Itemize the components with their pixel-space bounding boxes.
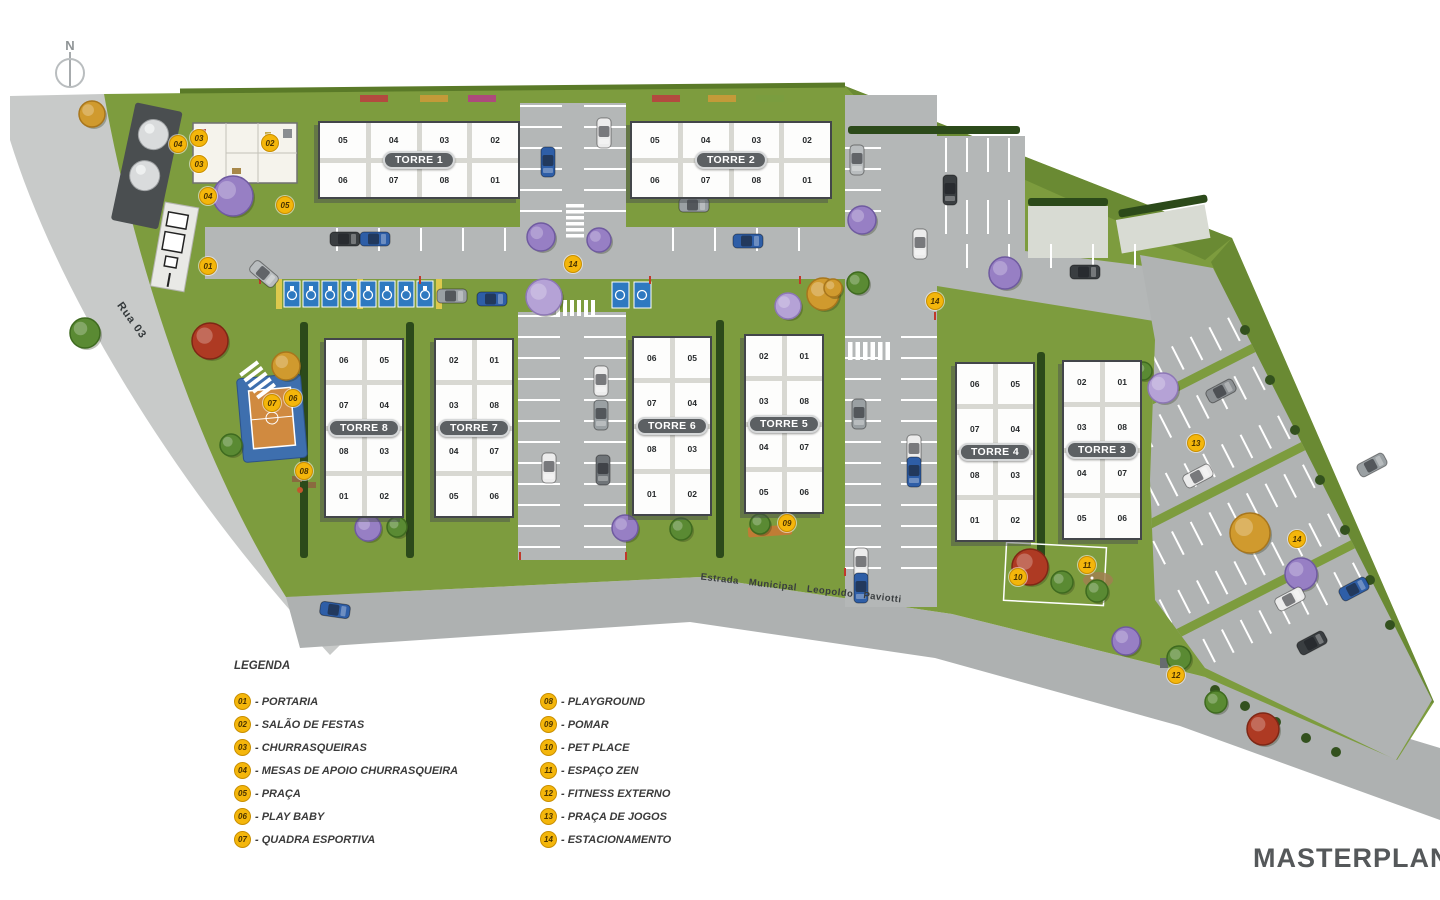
legend-item: 12- FITNESS EXTERNO	[540, 786, 770, 801]
legend-item: 13- PRAÇA DE JOGOS	[540, 809, 770, 824]
tower[interactable]: 0504030206070801TORRE 1	[318, 121, 520, 199]
tower[interactable]: 0201030804070506TORRE 7	[434, 338, 514, 518]
unit-number: 02	[675, 474, 711, 514]
car	[596, 455, 610, 485]
map-marker-12[interactable]: 12	[1167, 666, 1185, 684]
unit-number: 06	[632, 163, 678, 198]
legend-item: 10- PET PLACE	[540, 740, 770, 755]
map-marker-14[interactable]: 14	[926, 292, 944, 310]
unit-number: 01	[787, 336, 823, 376]
unit-number: 01	[957, 500, 993, 540]
legend-item-number: 05	[234, 785, 251, 802]
map-marker-08[interactable]: 08	[295, 462, 313, 480]
map-marker-04[interactable]: 04	[199, 187, 217, 205]
unit-number: 06	[1105, 498, 1141, 538]
car	[852, 399, 866, 429]
legend-item-number: 07	[234, 831, 251, 848]
map-marker-13[interactable]: 13	[1187, 434, 1205, 452]
legend-item-number: 14	[540, 831, 557, 848]
legend-item-number: 04	[234, 762, 251, 779]
map-marker-05[interactable]: 05	[276, 196, 294, 214]
tower-label: TORRE 7	[438, 419, 510, 437]
masterplan-canvas: N Rua 03 Estrada Municipal Leopoldo Pavi…	[0, 0, 1440, 900]
tower-label: TORRE 6	[636, 417, 708, 435]
unit-number: 02	[472, 123, 518, 158]
car	[360, 232, 390, 246]
tower-label: TORRE 2	[695, 151, 767, 169]
tower-label: TORRE 4	[959, 443, 1031, 461]
unit-number: 02	[1064, 362, 1100, 402]
map-marker-06[interactable]: 06	[284, 389, 302, 407]
unit-number: 02	[746, 336, 782, 376]
legend-item-number: 06	[234, 808, 251, 825]
car	[541, 147, 555, 177]
car	[733, 234, 763, 248]
tower[interactable]: 0201030804070506TORRE 5	[744, 334, 824, 514]
legend-item: 05- PRAÇA	[234, 786, 464, 801]
legend: LEGENDA 01- PORTARIA02- SALÃO DE FESTAS0…	[234, 660, 770, 847]
map-marker-07[interactable]: 07	[263, 394, 281, 412]
legend-item: 06- PLAY BABY	[234, 809, 464, 824]
car	[330, 232, 360, 246]
unit-number: 05	[1064, 498, 1100, 538]
map-marker-03[interactable]: 03	[190, 155, 208, 173]
legend-item-label: - CHURRASQUEIRAS	[255, 742, 367, 754]
car	[594, 400, 608, 430]
legend-item: 03- CHURRASQUEIRAS	[234, 740, 464, 755]
legend-item: 09- POMAR	[540, 717, 770, 732]
legend-item-number: 10	[540, 739, 557, 756]
unit-number: 06	[634, 338, 670, 378]
map-marker-09[interactable]: 09	[778, 514, 796, 532]
tower[interactable]: 0504030206070801TORRE 2	[630, 121, 832, 199]
legend-item-number: 11	[540, 762, 557, 779]
legend-item-number: 03	[234, 739, 251, 756]
map-marker-10[interactable]: 10	[1009, 568, 1027, 586]
legend-item: 01- PORTARIA	[234, 694, 464, 709]
legend-title: LEGENDA	[234, 660, 770, 672]
map-marker-01[interactable]: 01	[199, 257, 217, 275]
page-title: MASTERPLAN	[1253, 843, 1440, 874]
legend-item: 14- ESTACIONAMENTO	[540, 832, 770, 847]
legend-item-label: - PORTARIA	[255, 696, 318, 708]
car	[1355, 452, 1388, 478]
car	[850, 145, 864, 175]
legend-column-1: 01- PORTARIA02- SALÃO DE FESTAS03- CHURR…	[234, 694, 464, 847]
car	[542, 453, 556, 483]
unit-number: 01	[1105, 362, 1141, 402]
tower-label: TORRE 8	[328, 419, 400, 437]
car	[913, 229, 927, 259]
car	[943, 175, 957, 205]
unit-number: 02	[784, 123, 830, 158]
legend-item-label: - FITNESS EXTERNO	[561, 788, 670, 800]
legend-item-label: - PRAÇA	[255, 788, 301, 800]
unit-number: 01	[634, 474, 670, 514]
unit-number: 05	[436, 476, 472, 516]
legend-item-number: 08	[540, 693, 557, 710]
legend-column-2: 08- PLAYGROUND09- POMAR10- PET PLACE11- …	[540, 694, 770, 847]
legend-item: 02- SALÃO DE FESTAS	[234, 717, 464, 732]
legend-item-label: - PET PLACE	[561, 742, 629, 754]
tower-label: TORRE 3	[1066, 441, 1138, 459]
unit-number: 02	[367, 476, 403, 516]
legend-item-label: - POMAR	[561, 719, 609, 731]
legend-item-label: - SALÃO DE FESTAS	[255, 719, 364, 731]
legend-item: 08- PLAYGROUND	[540, 694, 770, 709]
legend-item: 07- QUADRA ESPORTIVA	[234, 832, 464, 847]
unit-number: 06	[320, 163, 366, 198]
legend-item: 11- ESPAÇO ZEN	[540, 763, 770, 778]
party-hall-building	[193, 123, 297, 183]
tower-label: TORRE 5	[748, 415, 820, 433]
map-marker-14[interactable]: 14	[564, 255, 582, 273]
legend-item-number: 09	[540, 716, 557, 733]
car	[597, 118, 611, 148]
unit-number: 05	[632, 123, 678, 158]
legend-item: 04- MESAS DE APOIO CHURRASQUEIRA	[234, 763, 464, 778]
unit-number: 06	[326, 340, 362, 380]
car	[1070, 265, 1100, 279]
legend-item-label: - QUADRA ESPORTIVA	[255, 834, 375, 846]
legend-item-label: - ESPAÇO ZEN	[561, 765, 638, 777]
tower-label: TORRE 1	[383, 151, 455, 169]
car	[437, 289, 467, 303]
unit-number: 06	[957, 364, 993, 404]
legend-item-label: - ESTACIONAMENTO	[561, 834, 671, 846]
legend-item-label: - MESAS DE APOIO CHURRASQUEIRA	[255, 765, 458, 777]
tower[interactable]: 0605070408030102TORRE 6	[632, 336, 712, 516]
legend-item-label: - PLAY BABY	[255, 811, 324, 823]
unit-number: 05	[675, 338, 711, 378]
unit-number: 05	[998, 364, 1034, 404]
legend-item-label: - PRAÇA DE JOGOS	[561, 811, 667, 823]
unit-number: 05	[746, 472, 782, 512]
tower[interactable]: 0201030804070506TORRE 3	[1062, 360, 1142, 540]
map-marker-03[interactable]: 03	[190, 129, 208, 147]
map-marker-14[interactable]: 14	[1288, 530, 1306, 548]
unit-number: 01	[477, 340, 513, 380]
map-marker-11[interactable]: 11	[1078, 556, 1096, 574]
tower[interactable]: 0605070408030102TORRE 4	[955, 362, 1035, 542]
north-label: N	[65, 40, 74, 52]
unit-number: 02	[436, 340, 472, 380]
legend-item-number: 13	[540, 808, 557, 825]
legend-item-number: 02	[234, 716, 251, 733]
unit-number: 01	[784, 163, 830, 198]
unit-number: 01	[326, 476, 362, 516]
unit-number: 05	[320, 123, 366, 158]
north-indicator: N	[52, 40, 88, 88]
unit-number: 02	[998, 500, 1034, 540]
unit-number: 06	[787, 472, 823, 512]
tower[interactable]: 0605070408030102TORRE 8	[324, 338, 404, 518]
map-marker-02[interactable]: 02	[261, 134, 279, 152]
unit-number: 06	[477, 476, 513, 516]
legend-item-number: 01	[234, 693, 251, 710]
unit-number: 05	[367, 340, 403, 380]
north-compass-icon	[55, 58, 85, 88]
legend-item-number: 12	[540, 785, 557, 802]
car	[907, 457, 921, 487]
car	[477, 292, 507, 306]
car	[679, 198, 709, 212]
map-marker-04[interactable]: 04	[169, 135, 187, 153]
car	[594, 366, 608, 396]
legend-item-label: - PLAYGROUND	[561, 696, 645, 708]
unit-number: 01	[472, 163, 518, 198]
